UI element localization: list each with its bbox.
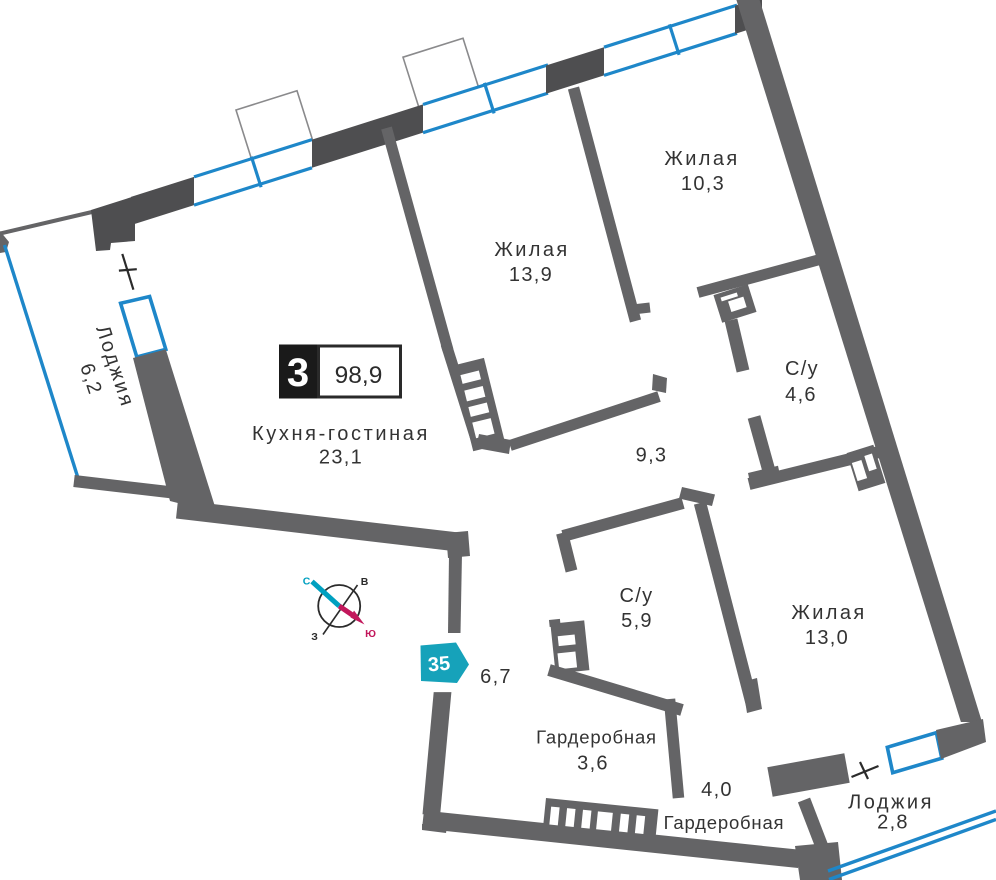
svg-text:Жилая: Жилая [791, 602, 866, 624]
svg-text:35: 35 [427, 653, 451, 677]
svg-text:С: С [303, 576, 311, 588]
svg-text:3,6: 3,6 [577, 753, 609, 775]
svg-text:Жилая: Жилая [664, 148, 739, 170]
svg-text:98,9: 98,9 [335, 362, 383, 389]
svg-text:Лоджия: Лоджия [848, 792, 934, 814]
svg-text:23,1: 23,1 [319, 447, 363, 469]
svg-text:4,0: 4,0 [701, 779, 733, 801]
svg-text:Кухня-гостиная: Кухня-гостиная [252, 423, 430, 445]
svg-text:5,9: 5,9 [621, 610, 653, 632]
svg-text:3: 3 [287, 351, 309, 395]
svg-text:Жилая: Жилая [494, 239, 569, 261]
svg-text:С/у: С/у [785, 358, 819, 380]
svg-text:13,9: 13,9 [509, 264, 553, 286]
svg-text:Ю: Ю [365, 628, 376, 640]
svg-text:2,8: 2,8 [877, 812, 909, 834]
svg-text:Гардеробная: Гардеробная [664, 812, 785, 833]
svg-text:4,6: 4,6 [785, 384, 817, 406]
svg-text:С/у: С/у [620, 585, 654, 607]
svg-text:9,3: 9,3 [636, 445, 668, 467]
svg-text:13,0: 13,0 [805, 627, 849, 649]
svg-text:Гардеробная: Гардеробная [536, 727, 657, 748]
svg-text:10,3: 10,3 [681, 173, 725, 195]
svg-text:6,7: 6,7 [480, 666, 512, 688]
svg-text:З: З [311, 631, 318, 643]
svg-text:В: В [361, 576, 369, 588]
